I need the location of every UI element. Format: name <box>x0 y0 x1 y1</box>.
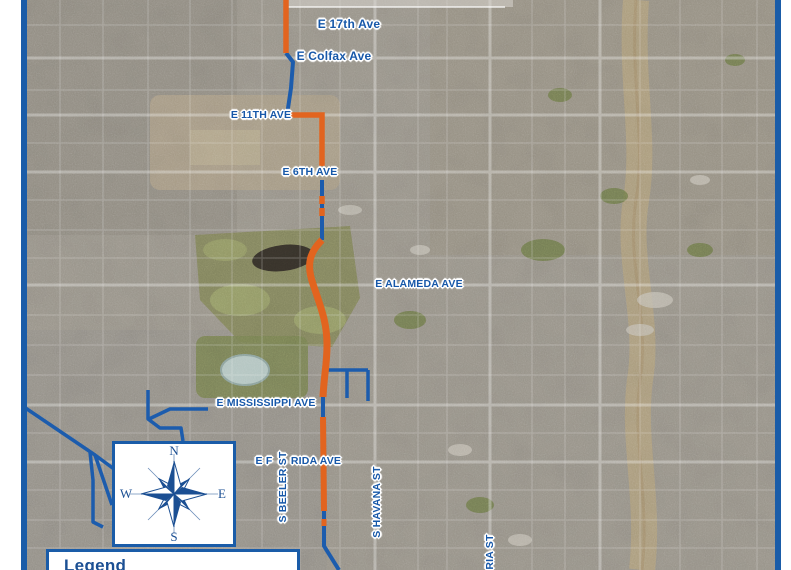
map-frame-border-left <box>21 0 27 570</box>
compass-south-label: S <box>170 529 177 544</box>
street-label-s-havana-st: S HAVANA ST <box>372 466 383 537</box>
street-label-e-17th-ave: E 17th Ave <box>318 18 380 30</box>
street-label-s-beeler-st: S BEELER ST <box>278 451 289 522</box>
street-label-e-6th-ave: E 6TH AVE <box>283 167 338 178</box>
street-label-s-peoria-st-partial: RIA ST <box>485 534 496 569</box>
street-label-e-florida-ave-left: E F <box>256 456 273 467</box>
street-label-e-colfax-ave: E Colfax Ave <box>297 50 372 62</box>
legend-title: Legend <box>64 556 297 570</box>
street-label-e-mississippi-ave: E MISSISSIPPI AVE <box>216 398 315 409</box>
compass-box: N S W E <box>112 441 236 547</box>
map-page: E 17th Ave E Colfax Ave E 11TH AVE E 6TH… <box>0 0 791 570</box>
compass-east-label: E <box>218 486 226 501</box>
street-label-e-11th-ave: E 11TH AVE <box>231 110 291 121</box>
cutoff-label-box-top <box>288 0 513 7</box>
right-page-margin <box>781 0 791 570</box>
legend-box: Legend <box>46 549 300 570</box>
street-label-e-alameda-ave: E ALAMEDA AVE <box>375 279 463 290</box>
compass-north-label: N <box>169 444 179 458</box>
street-label-e-florida-ave-right: RIDA AVE <box>291 456 341 467</box>
left-page-margin <box>0 0 21 570</box>
compass-west-label: W <box>120 486 133 501</box>
compass-rose-icon: N S W E <box>115 444 233 544</box>
